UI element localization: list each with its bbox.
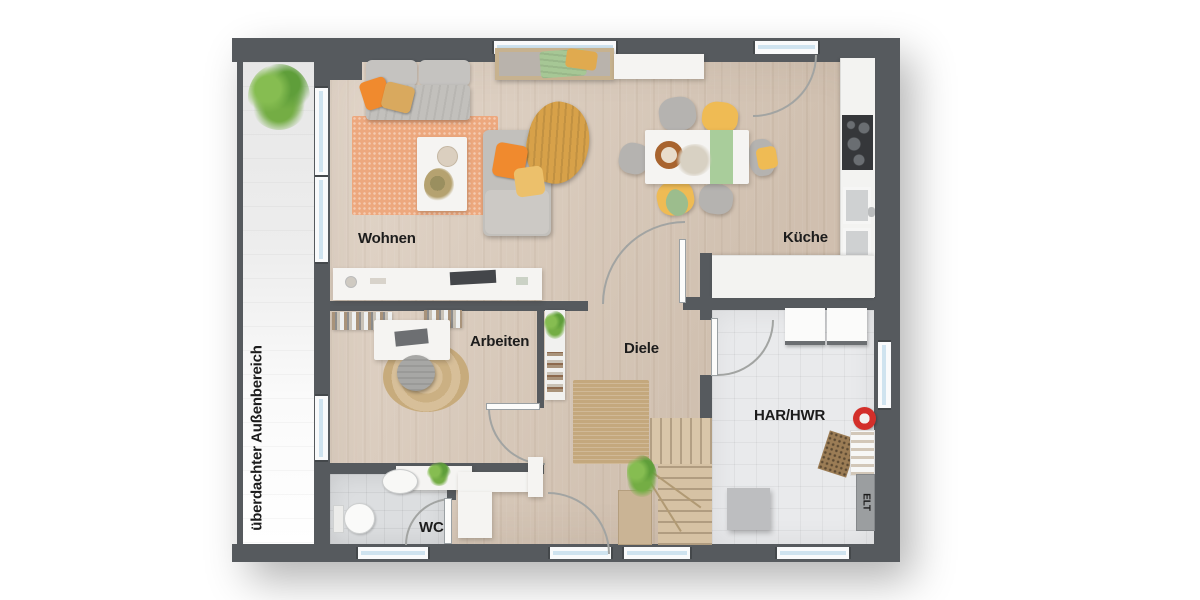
door-leaf-living-hall bbox=[679, 239, 686, 303]
hall-rug bbox=[573, 380, 649, 464]
toilet-bowl bbox=[344, 503, 375, 534]
door-leaf-utility bbox=[711, 318, 718, 376]
table-flowers-decor bbox=[676, 144, 712, 176]
floorplan-canvas: Wohnen Küche Arbeiten Diele HAR/HWR WC E… bbox=[0, 0, 1200, 600]
room-label-arbeiten: Arbeiten bbox=[470, 333, 529, 350]
shelf-plant bbox=[544, 311, 566, 339]
window-hall-bottom bbox=[622, 547, 692, 559]
stairs-upper-flight bbox=[650, 418, 712, 464]
chair-cushion-yellow bbox=[755, 145, 779, 170]
window-living-left-upper bbox=[315, 86, 328, 177]
kitchen-sink-basin bbox=[843, 187, 871, 224]
room-label-wohnen: Wohnen bbox=[358, 230, 416, 247]
sideboard-decor bbox=[516, 277, 528, 285]
toilet-tank bbox=[333, 505, 344, 533]
stair-plant bbox=[627, 455, 657, 497]
hall-cabinet bbox=[458, 472, 530, 492]
room-label-diele: Diele bbox=[624, 340, 659, 357]
wall-outdoor-edge bbox=[237, 38, 243, 562]
wall-corner-block bbox=[314, 55, 362, 80]
vacuum-robot bbox=[853, 407, 876, 430]
tray-decor bbox=[437, 146, 458, 167]
kitchen-faucet bbox=[868, 207, 875, 217]
label-outdoor-area: überdachter Außenbereich bbox=[249, 345, 266, 531]
door-kitchen-top bbox=[753, 41, 820, 54]
room-label-har-hwr: HAR/HWR bbox=[754, 407, 825, 424]
wall-office-east bbox=[537, 310, 544, 408]
window-living-left-lower bbox=[315, 175, 328, 264]
window-utility-right bbox=[878, 340, 891, 410]
wc-sink bbox=[382, 469, 418, 494]
stairs-lower-flight bbox=[658, 464, 712, 545]
tv bbox=[450, 270, 497, 285]
window-utility-bottom bbox=[775, 547, 851, 559]
sofa-back-cushion bbox=[419, 60, 470, 86]
outdoor-plant bbox=[248, 64, 310, 130]
pillow-yellow bbox=[513, 165, 546, 198]
desk-chair bbox=[397, 355, 435, 391]
sideboard-decor bbox=[370, 278, 386, 284]
storage-box bbox=[727, 488, 770, 530]
dried-plant-decor bbox=[424, 168, 454, 202]
utility-shelf bbox=[850, 430, 875, 476]
shelf-books bbox=[547, 352, 563, 392]
sideboard-top bbox=[614, 54, 704, 79]
tv-sideboard bbox=[333, 268, 542, 300]
window-office-left bbox=[315, 394, 328, 462]
cooktop bbox=[842, 115, 873, 170]
door-leaf-office bbox=[486, 403, 540, 410]
kitchen-counter-bottom bbox=[712, 255, 874, 298]
chaise-cushion bbox=[485, 190, 549, 234]
dryer bbox=[827, 308, 867, 345]
stairs-landing bbox=[618, 490, 652, 545]
wall-kitchen-stub bbox=[700, 253, 712, 301]
door-leaf-wc bbox=[444, 498, 452, 544]
wall-right bbox=[874, 38, 900, 562]
hall-cabinet bbox=[458, 492, 492, 538]
room-label-wc: WC bbox=[419, 519, 444, 536]
sideboard-decor bbox=[345, 276, 357, 288]
washing-machine bbox=[785, 308, 825, 345]
label-elt: ELT bbox=[861, 493, 872, 511]
cabinet-plant bbox=[427, 462, 451, 486]
table-runner bbox=[710, 130, 733, 184]
window-wc-bottom bbox=[356, 547, 430, 559]
hall-cabinet bbox=[528, 457, 543, 497]
room-label-kueche: Küche bbox=[783, 229, 828, 246]
